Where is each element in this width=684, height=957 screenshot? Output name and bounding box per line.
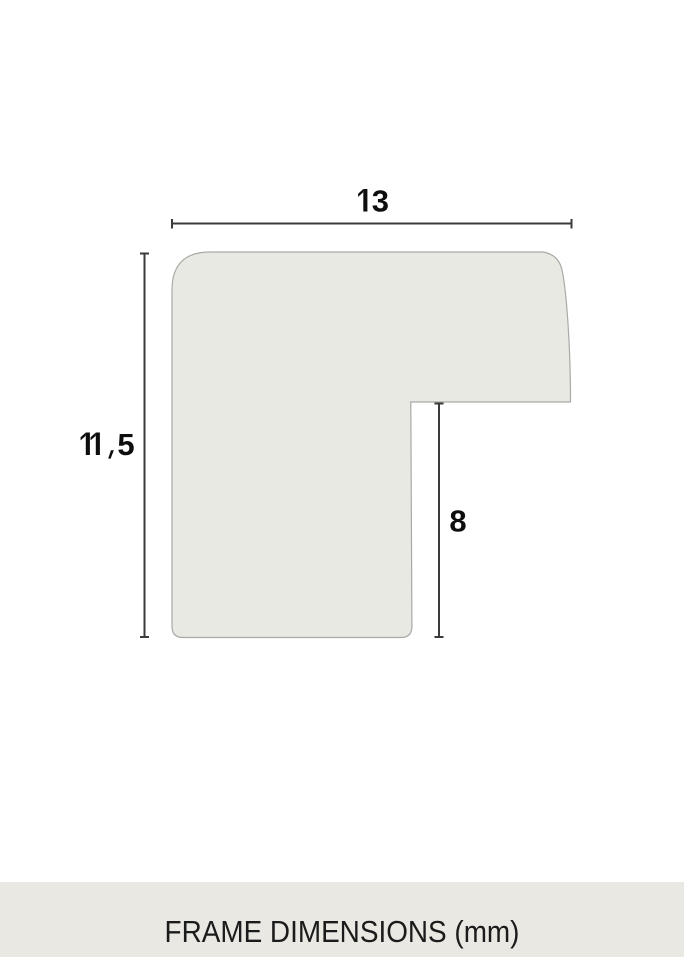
svg-text:3: 3 <box>372 184 389 219</box>
svg-text:8: 8 <box>449 504 466 539</box>
svg-text:5: 5 <box>117 427 134 462</box>
